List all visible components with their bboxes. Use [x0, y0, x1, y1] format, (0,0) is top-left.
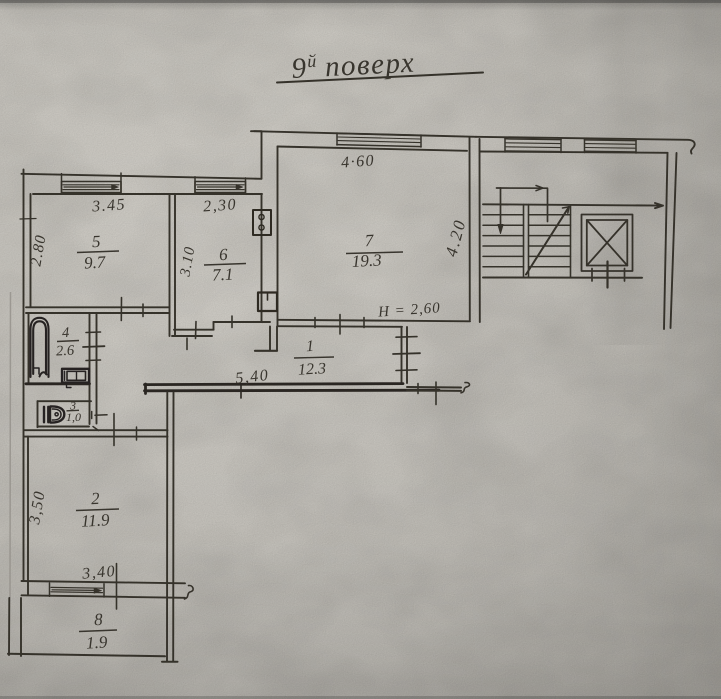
svg-text:3,40: 3,40: [80, 563, 116, 583]
svg-text:6: 6: [219, 245, 229, 264]
svg-text:9.7: 9.7: [84, 252, 108, 272]
svg-text:2,30: 2,30: [203, 196, 238, 215]
svg-text:7.1: 7.1: [212, 265, 234, 285]
svg-text:1,0: 1,0: [66, 410, 81, 424]
svg-text:5: 5: [91, 232, 100, 251]
svg-text:4: 4: [62, 325, 70, 341]
svg-text:8: 8: [94, 610, 104, 629]
svg-text:5,40: 5,40: [234, 367, 270, 387]
svg-text:12.3: 12.3: [298, 360, 327, 378]
svg-text:1.9: 1.9: [86, 632, 109, 652]
svg-text:11.9: 11.9: [81, 510, 111, 530]
svg-text:3.45: 3.45: [91, 196, 127, 215]
svg-text:2: 2: [91, 489, 101, 508]
svg-text:2.6: 2.6: [56, 343, 76, 360]
svg-text:1: 1: [306, 338, 315, 355]
svg-text:4·60: 4·60: [341, 152, 376, 171]
